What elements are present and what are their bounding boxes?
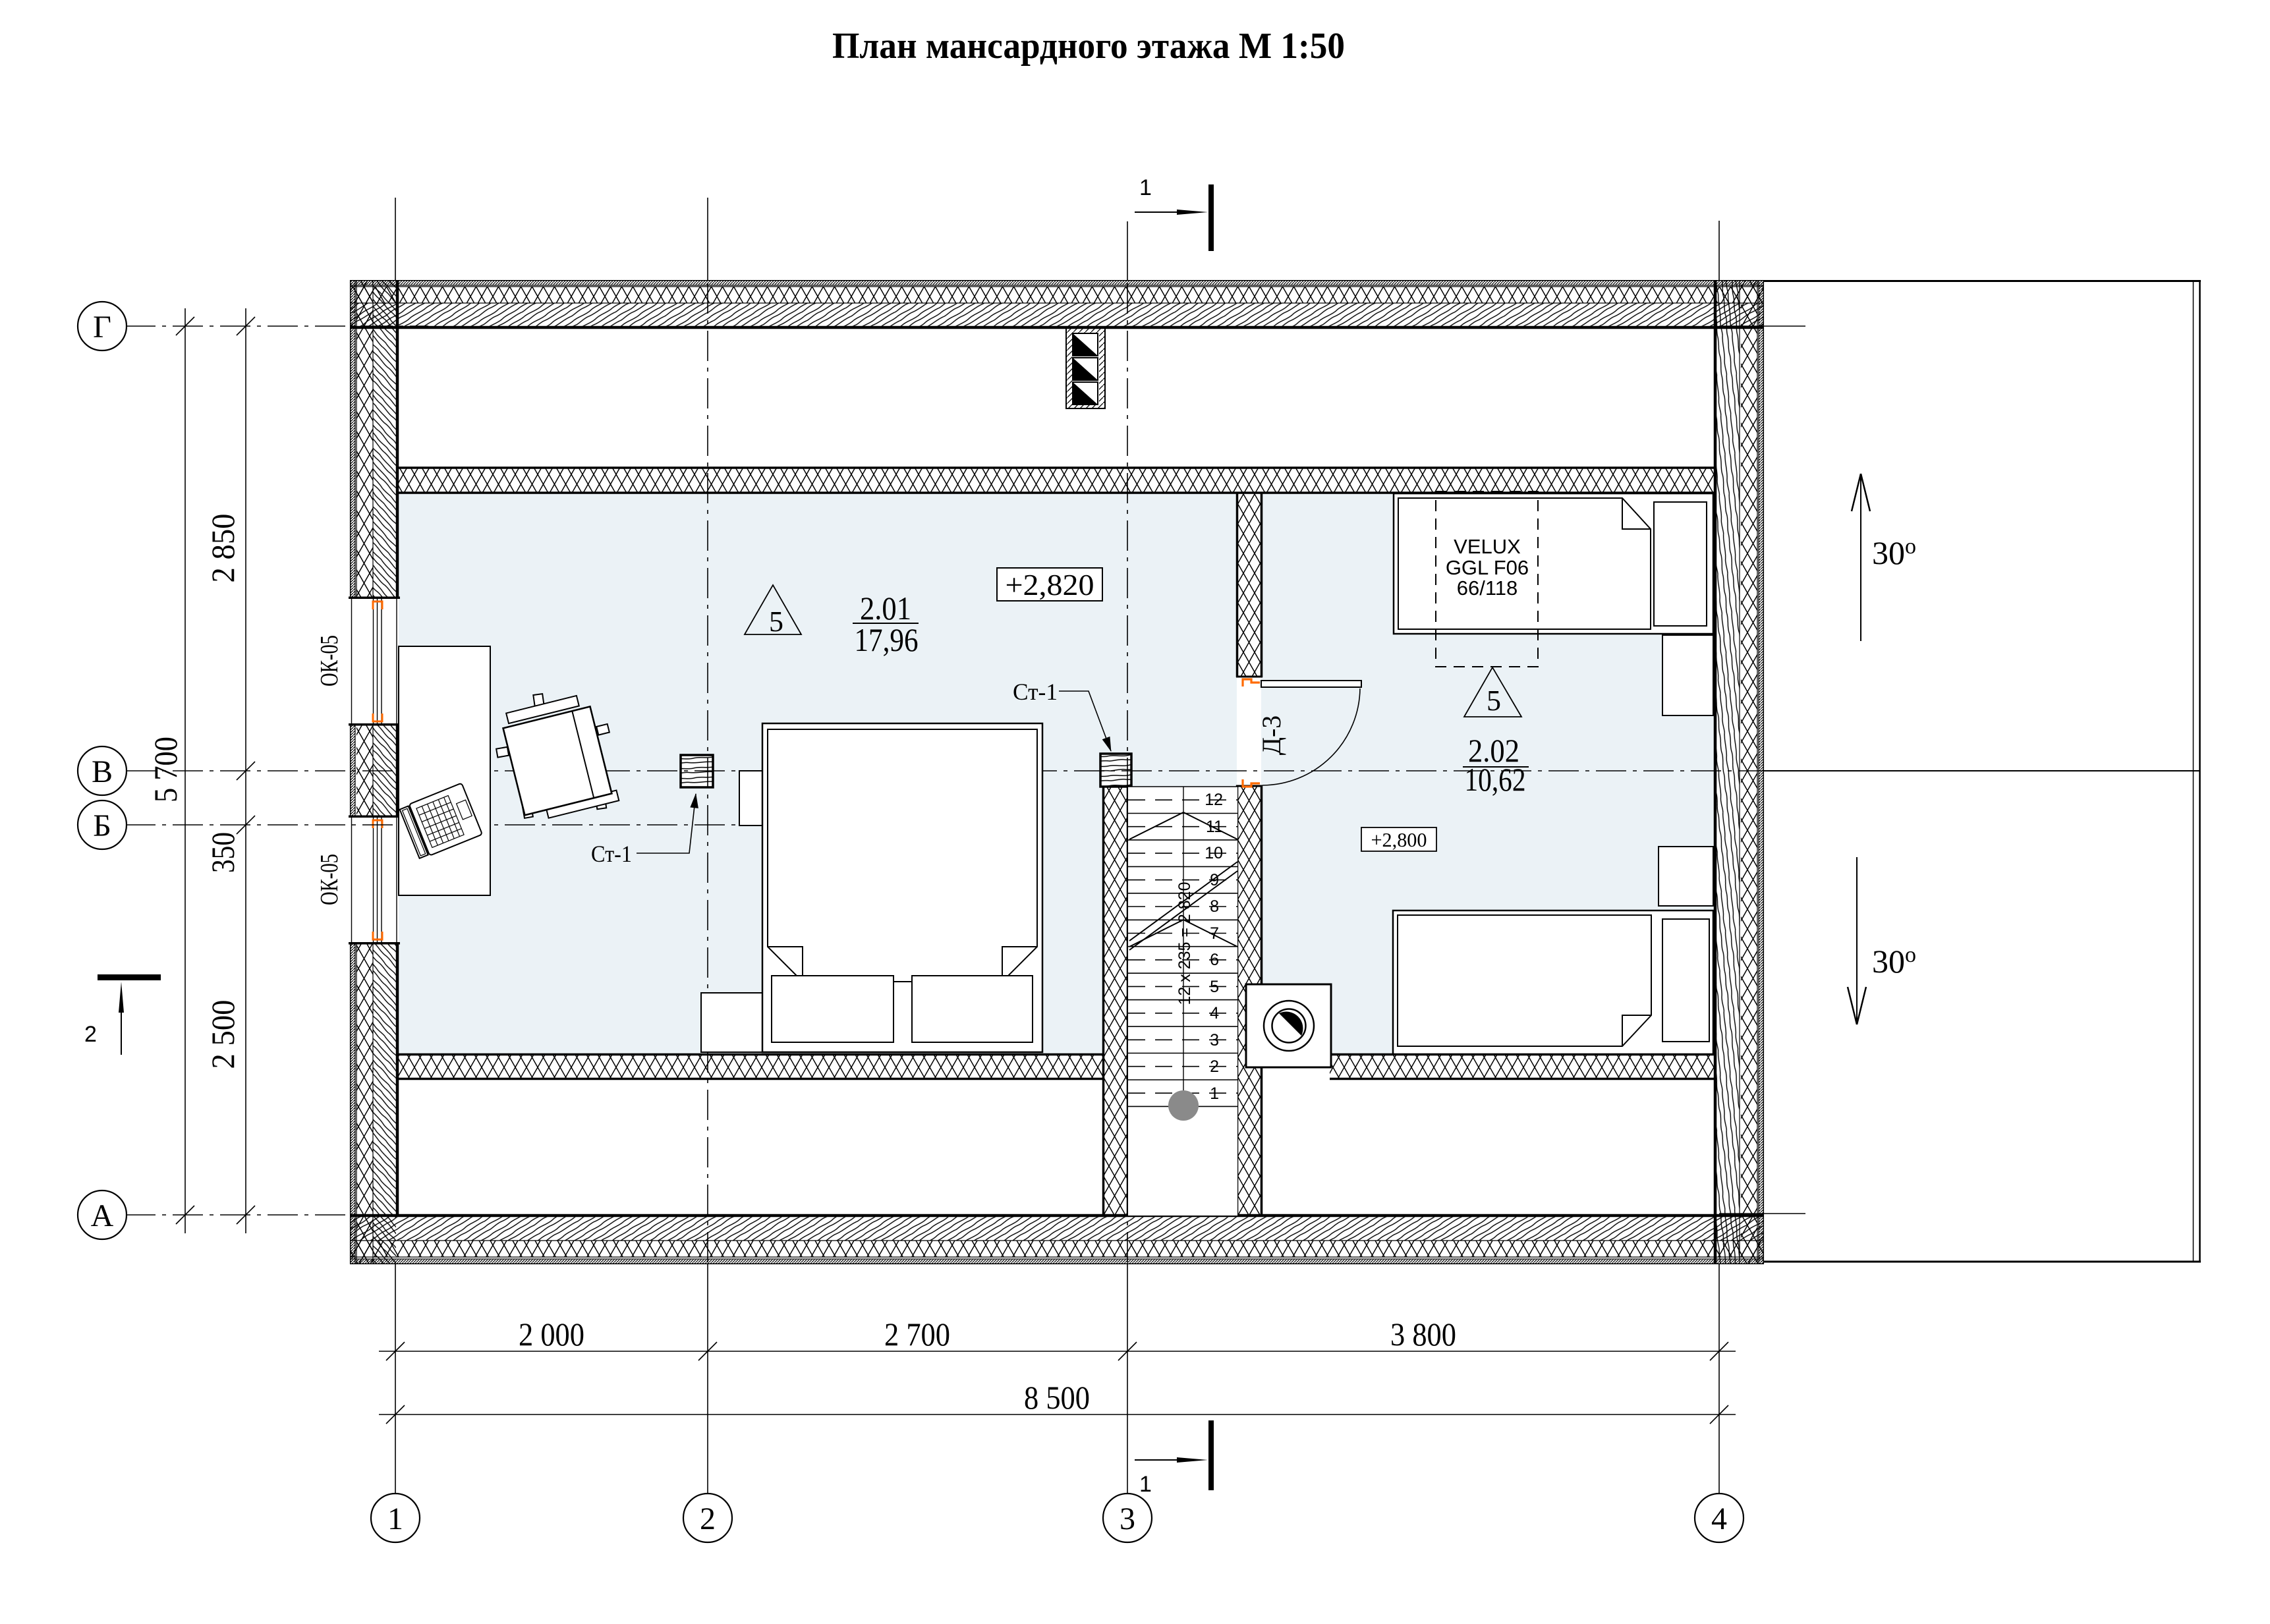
svg-text:3: 3 (1120, 1501, 1135, 1536)
svg-text:8: 8 (1210, 897, 1219, 916)
svg-text:5 700: 5 700 (147, 737, 184, 802)
svg-text:Д-3: Д-3 (1257, 715, 1286, 756)
svg-text:66/118: 66/118 (1457, 576, 1518, 600)
svg-text:10: 10 (1205, 844, 1223, 862)
svg-text:План мансардного этажа М 1:50: План мансардного этажа М 1:50 (832, 26, 1345, 67)
svg-text:Ст-1: Ст-1 (1013, 679, 1058, 705)
svg-text:1: 1 (1210, 1084, 1219, 1103)
svg-text:350: 350 (204, 832, 241, 873)
svg-text:VELUX: VELUX (1454, 535, 1521, 558)
svg-text:5: 5 (769, 605, 783, 638)
svg-text:2: 2 (84, 1022, 97, 1047)
svg-text:Б: Б (93, 808, 111, 843)
svg-text:2: 2 (1210, 1057, 1219, 1076)
svg-text:Ст-1: Ст-1 (591, 841, 632, 867)
svg-text:12 x 235 = 2 820: 12 x 235 = 2 820 (1176, 882, 1194, 1005)
svg-text:6: 6 (1210, 951, 1219, 969)
svg-text:1: 1 (1139, 175, 1152, 200)
svg-text:ОК-05: ОК-05 (316, 635, 343, 686)
svg-text:8 500: 8 500 (1024, 1379, 1090, 1416)
svg-text:+2,820: +2,820 (1006, 568, 1094, 602)
svg-text:2 000: 2 000 (519, 1316, 584, 1353)
svg-text:5: 5 (1487, 685, 1501, 717)
svg-text:12: 12 (1205, 791, 1223, 809)
svg-text:GGL F06: GGL F06 (1446, 556, 1529, 579)
svg-text:2: 2 (700, 1501, 716, 1536)
svg-text:5: 5 (1210, 978, 1219, 996)
svg-text:А: А (91, 1198, 114, 1233)
svg-text:1: 1 (1139, 1472, 1152, 1497)
svg-text:4: 4 (1711, 1501, 1727, 1536)
svg-text:2 700: 2 700 (884, 1316, 950, 1353)
svg-text:4: 4 (1210, 1004, 1219, 1022)
svg-text:Г: Г (93, 310, 111, 345)
svg-text:В: В (92, 754, 113, 789)
svg-text:1: 1 (387, 1501, 403, 1536)
svg-text:17,96: 17,96 (855, 621, 919, 658)
svg-text:3: 3 (1210, 1031, 1219, 1050)
svg-text:2 850: 2 850 (204, 514, 241, 583)
svg-text:+2,800: +2,800 (1371, 828, 1427, 851)
svg-text:ОК-05: ОК-05 (316, 854, 343, 905)
svg-text:2 500: 2 500 (204, 1000, 241, 1069)
svg-text:3 800: 3 800 (1390, 1316, 1456, 1353)
svg-text:11: 11 (1206, 818, 1223, 836)
